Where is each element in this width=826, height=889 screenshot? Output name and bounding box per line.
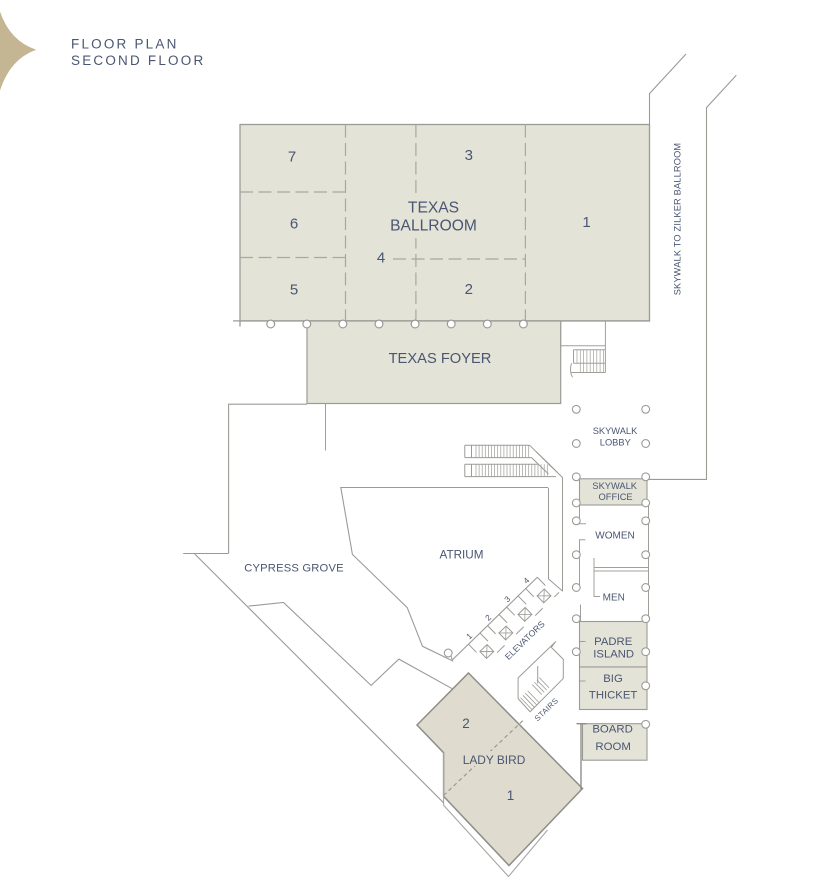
svg-text:SKYWALK: SKYWALK bbox=[592, 481, 637, 491]
svg-text:BIG: BIG bbox=[603, 673, 622, 685]
svg-text:ROOM: ROOM bbox=[595, 741, 630, 753]
svg-text:7: 7 bbox=[288, 149, 296, 166]
svg-text:OFFICE: OFFICE bbox=[599, 492, 633, 502]
svg-text:1: 1 bbox=[507, 788, 515, 803]
svg-text:ELEVATORS: ELEVATORS bbox=[503, 619, 547, 662]
svg-text:ATRIUM: ATRIUM bbox=[440, 549, 484, 562]
svg-text:BALLROOM: BALLROOM bbox=[390, 218, 477, 235]
svg-text:WOMEN: WOMEN bbox=[595, 531, 634, 542]
svg-text:4: 4 bbox=[377, 250, 385, 267]
svg-text:SKYWALK TO ZILKER BALLROOM: SKYWALK TO ZILKER BALLROOM bbox=[672, 143, 682, 296]
svg-text:LADY BIRD: LADY BIRD bbox=[463, 753, 526, 767]
svg-text:FLOOR PLAN: FLOOR PLAN bbox=[71, 37, 179, 52]
svg-text:5: 5 bbox=[290, 282, 298, 299]
svg-text:MEN: MEN bbox=[603, 592, 625, 603]
svg-text:TEXAS FOYER: TEXAS FOYER bbox=[389, 351, 492, 367]
svg-text:3: 3 bbox=[465, 147, 473, 164]
svg-text:6: 6 bbox=[290, 216, 298, 233]
svg-text:SECOND FLOOR: SECOND FLOOR bbox=[71, 53, 205, 68]
svg-text:ISLAND: ISLAND bbox=[593, 648, 634, 660]
svg-text:SKYWALK: SKYWALK bbox=[593, 426, 638, 436]
svg-text:BOARD: BOARD bbox=[592, 723, 633, 735]
svg-text:2: 2 bbox=[465, 281, 473, 298]
svg-text:THICKET: THICKET bbox=[589, 690, 637, 702]
svg-text:CYPRESS GROVE: CYPRESS GROVE bbox=[244, 563, 344, 575]
svg-text:1: 1 bbox=[582, 214, 590, 231]
svg-text:LOBBY: LOBBY bbox=[600, 438, 631, 448]
svg-text:2: 2 bbox=[462, 716, 470, 731]
svg-text:PADRE: PADRE bbox=[594, 636, 633, 648]
svg-text:TEXAS: TEXAS bbox=[408, 200, 459, 217]
